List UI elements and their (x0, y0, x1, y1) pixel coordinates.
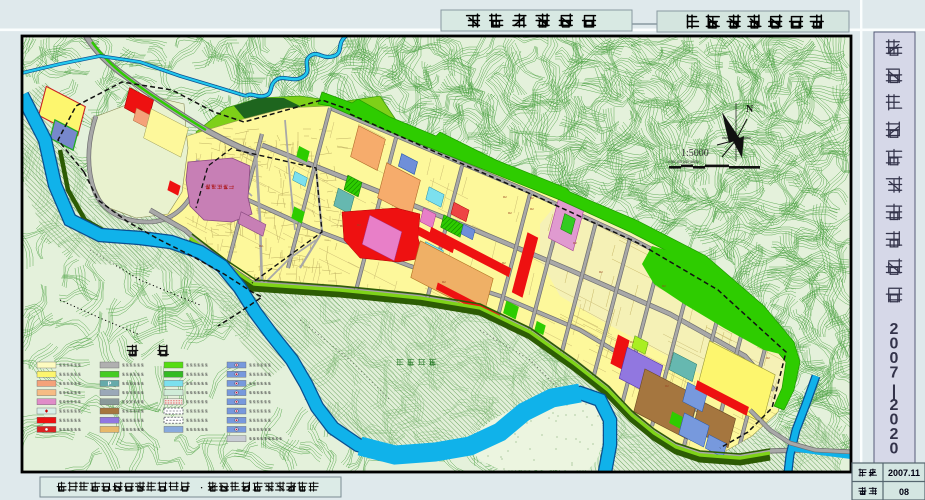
svg-text:08: 08 (899, 487, 909, 497)
svg-text:R2: R2 (662, 284, 666, 288)
svg-text:7: 7 (890, 365, 899, 382)
svg-text:R2: R2 (715, 396, 719, 400)
svg-text:R2: R2 (766, 356, 770, 360)
svg-text:P: P (108, 382, 112, 388)
svg-text:R2: R2 (502, 261, 506, 265)
svg-text:1:5000: 1:5000 (681, 148, 709, 159)
svg-text:R2: R2 (665, 384, 669, 388)
svg-text:R2: R2 (599, 270, 603, 274)
svg-text:R2: R2 (508, 211, 512, 215)
svg-text:R2: R2 (357, 223, 361, 227)
svg-text:R2: R2 (259, 244, 263, 248)
svg-text:R2: R2 (573, 241, 577, 245)
svg-text:N: N (746, 104, 754, 115)
svg-text:R2: R2 (442, 280, 446, 284)
svg-text:R2: R2 (630, 340, 634, 344)
svg-text:2007.11: 2007.11 (888, 468, 920, 478)
svg-text:0: 0 (890, 441, 899, 458)
svg-text:R2: R2 (530, 196, 534, 200)
svg-text:0 50 100 200 400M: 0 50 100 200 400M (668, 160, 699, 164)
svg-text:R2: R2 (503, 195, 507, 199)
svg-text:R2: R2 (340, 224, 344, 228)
svg-text:R2: R2 (530, 207, 534, 211)
